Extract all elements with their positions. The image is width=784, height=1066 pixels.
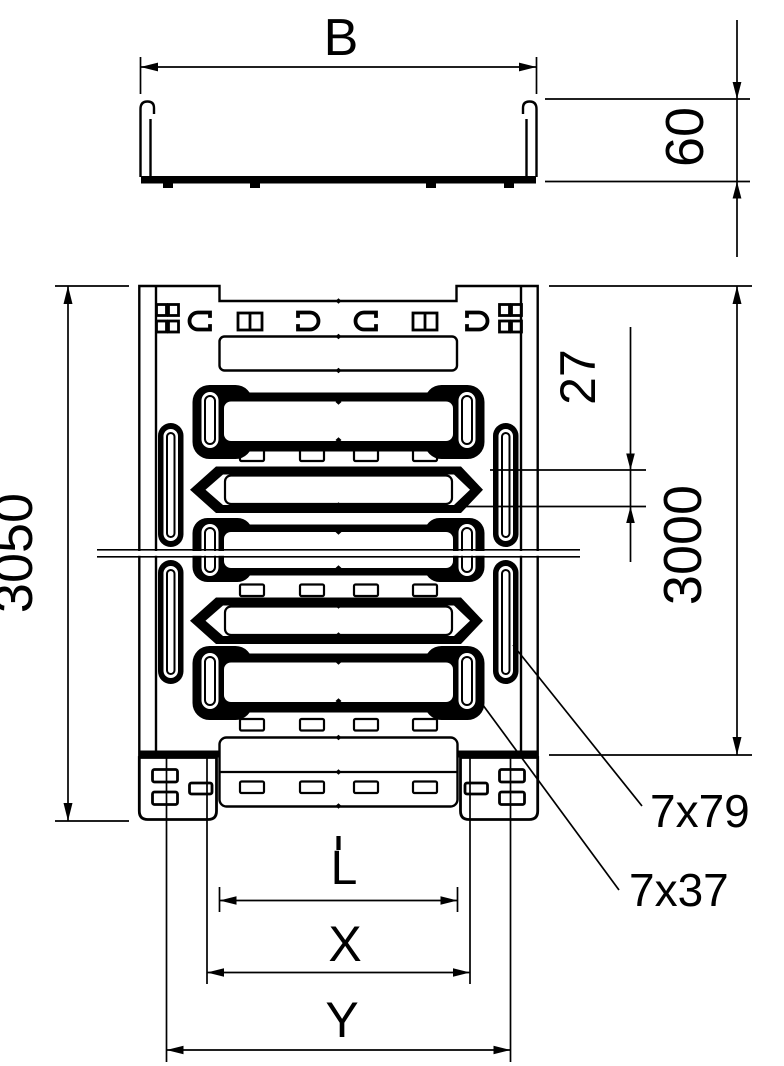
cable-tray-technical-drawing: B 60: [0, 0, 784, 1066]
side-rail-slot: [493, 560, 519, 684]
dogbone-slot-1: [193, 385, 485, 459]
label-7x37: 7x37: [629, 864, 729, 916]
hex-slot-2: [190, 598, 483, 645]
label-Y: Y: [325, 992, 358, 1048]
label-60: 60: [655, 107, 715, 167]
label-X: X: [328, 916, 361, 972]
label-L: L: [331, 842, 358, 895]
dogbone-slot-3: [193, 646, 485, 720]
side-rail-slot: [158, 560, 184, 684]
side-rail-slot: [158, 423, 184, 547]
label-7x79: 7x79: [650, 785, 750, 837]
section-bottom: [141, 176, 536, 184]
label-B: B: [324, 9, 359, 67]
side-rail-slot: [493, 423, 519, 547]
drawing-canvas: B 60: [0, 0, 784, 1066]
label-3050: 3050: [0, 493, 44, 613]
label-3000: 3000: [653, 485, 713, 605]
label-27: 27: [550, 349, 606, 405]
